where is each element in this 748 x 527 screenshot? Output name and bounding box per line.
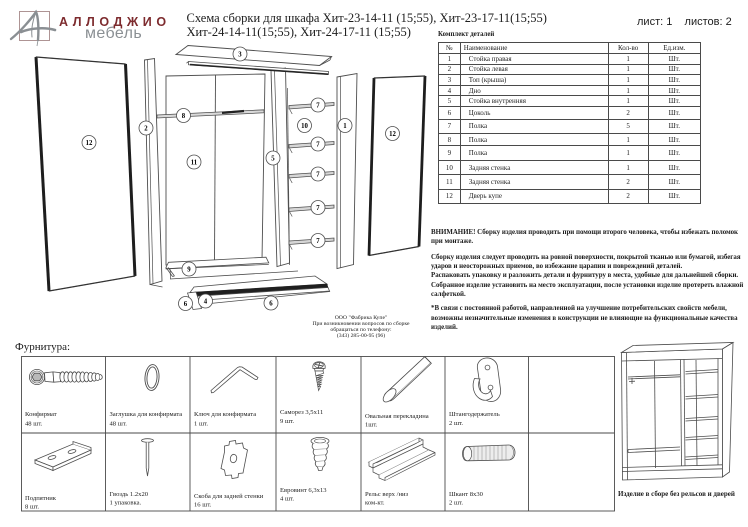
svg-text:10: 10 [301,123,308,130]
svg-text:8: 8 [182,113,186,120]
svg-text:1шт.: 1шт. [365,422,378,429]
svg-text:Евровинт 6,3х13: Евровинт 6,3х13 [280,487,327,494]
svg-text:Подпятник: Подпятник [25,495,57,502]
svg-text:Скоба для задней стенки: Скоба для задней стенки [194,493,264,500]
svg-text:1: 1 [343,123,347,130]
svg-text:7: 7 [316,205,320,212]
svg-text:8 шт.: 8 шт. [25,504,39,511]
svg-text:1 упаковка.: 1 упаковка. [110,500,142,507]
svg-text:2 шт.: 2 шт. [449,500,463,507]
svg-text:11: 11 [191,160,198,167]
svg-text:7: 7 [316,142,320,149]
svg-text:12: 12 [389,131,396,138]
svg-text:9 шт.: 9 шт. [280,418,294,425]
svg-text:Рельс верх /низ: Рельс верх /низ [365,491,409,498]
svg-text:4 шт.: 4 шт. [280,496,294,503]
svg-text:Овальная перекладина: Овальная перекладина [365,413,429,420]
svg-text:Саморез 3,5х11: Саморез 3,5х11 [280,409,323,416]
svg-text:2 шт.: 2 шт. [449,420,463,427]
svg-text:4: 4 [204,299,208,306]
svg-text:12: 12 [86,140,93,147]
svg-text:48 шт.: 48 шт. [110,421,128,428]
svg-text:48 шт.: 48 шт. [25,421,43,428]
svg-text:2: 2 [144,126,148,133]
svg-text:3: 3 [238,52,242,59]
svg-text:ком-кт.: ком-кт. [365,500,385,507]
svg-text:6: 6 [269,301,273,308]
svg-text:5: 5 [271,156,275,163]
svg-text:16 шт.: 16 шт. [194,502,212,509]
svg-text:9: 9 [187,267,191,274]
svg-text:7: 7 [316,103,320,110]
svg-text:Заглушка для конфирмата: Заглушка для конфирмата [110,411,183,418]
svg-text:7: 7 [316,172,320,179]
svg-text:1 шт.: 1 шт. [194,421,208,428]
svg-text:6: 6 [184,301,188,308]
svg-text:Гвоздь 1.2х20: Гвоздь 1.2х20 [110,491,149,498]
svg-text:Шкант 8х30: Шкант 8х30 [449,491,484,498]
svg-text:Штангодержатель: Штангодержатель [449,411,500,418]
svg-text:Конфирмат: Конфирмат [25,411,57,418]
svg-text:Ключ для конфирмата: Ключ для конфирмата [194,411,256,418]
svg-text:7: 7 [316,238,320,245]
